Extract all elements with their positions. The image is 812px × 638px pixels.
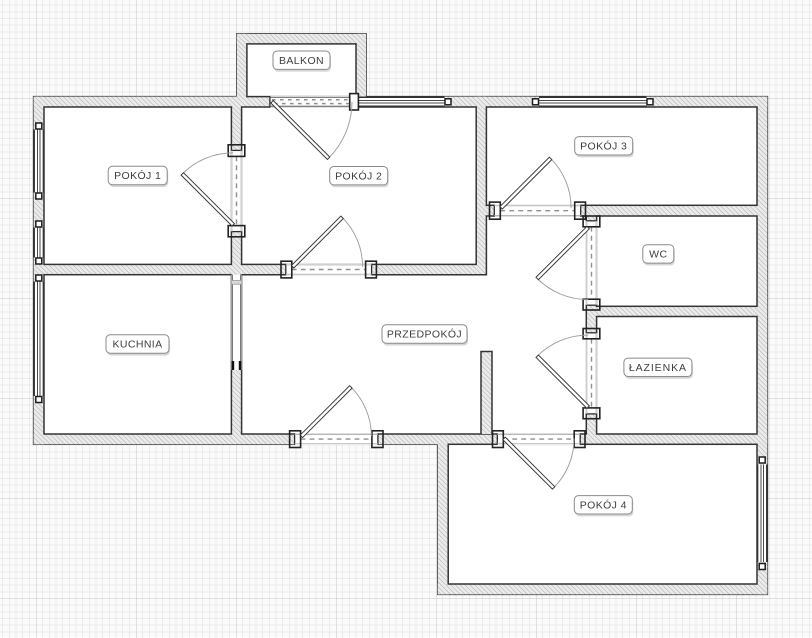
svg-text:ŁAZIENKA: ŁAZIENKA [629, 362, 687, 374]
svg-text:BALKON: BALKON [279, 55, 324, 67]
svg-text:POKÓJ 4: POKÓJ 4 [580, 499, 627, 512]
svg-text:WC: WC [649, 249, 667, 261]
svg-text:PRZEDPOKÓJ: PRZEDPOKÓJ [387, 328, 462, 341]
svg-text:POKÓJ 3: POKÓJ 3 [580, 140, 627, 153]
svg-text:POKÓJ 1: POKÓJ 1 [114, 169, 161, 182]
svg-text:KUCHNIA: KUCHNIA [112, 339, 162, 351]
svg-text:POKÓJ 2: POKÓJ 2 [335, 169, 382, 182]
